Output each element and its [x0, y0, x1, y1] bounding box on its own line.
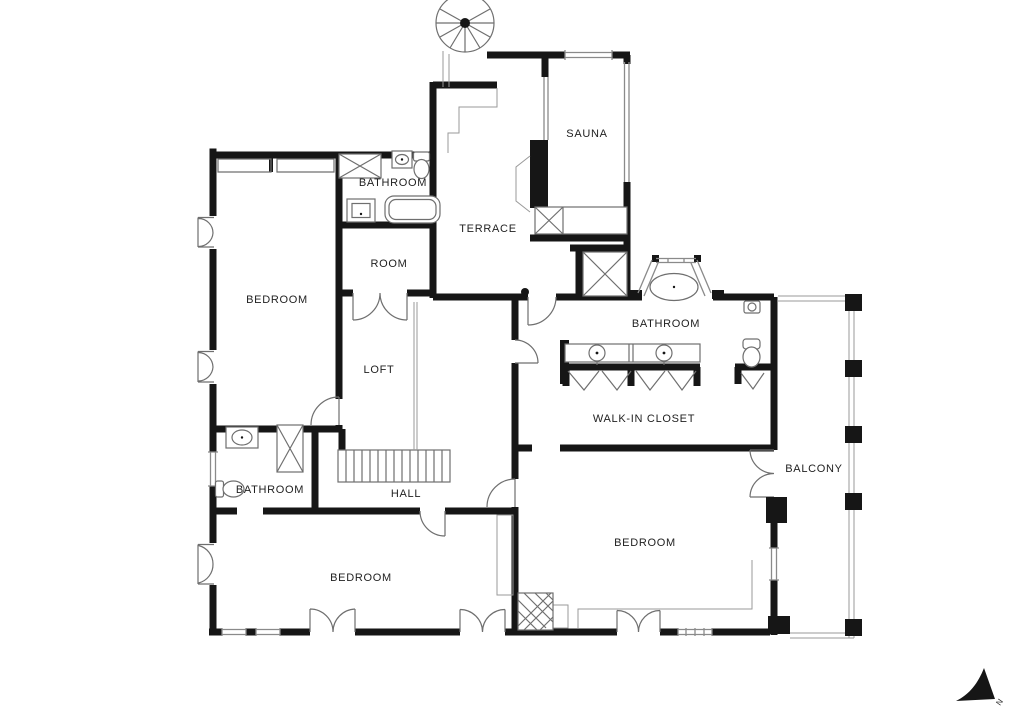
room-label-bedroom-right: BEDROOM	[614, 537, 676, 549]
terrace-features	[436, 0, 497, 153]
room-label-bathroom-top: BATHROOM	[359, 177, 427, 189]
window-icon	[678, 628, 712, 636]
shower-icon	[277, 425, 303, 472]
door-icon	[420, 511, 445, 536]
double-door-icon	[617, 611, 660, 633]
column-icon	[768, 616, 790, 634]
spiral-staircase-icon	[436, 0, 494, 87]
floor-plan-page: BEDROOM BATHROOM ROOM TERRACE SAUNA LOFT…	[0, 0, 1024, 711]
door-icon	[515, 340, 538, 363]
elevator-shaft-icon	[583, 252, 627, 296]
vanity-double-sink	[565, 344, 700, 365]
room-label-terrace: TERRACE	[459, 223, 516, 235]
oval-bathtub-icon	[650, 274, 698, 301]
double-door-icon	[310, 609, 355, 632]
bay-corner-right	[712, 290, 724, 299]
double-door-icon	[353, 293, 407, 320]
window-gap	[207, 350, 220, 384]
bathtub-icon	[385, 196, 440, 223]
window-icon	[769, 548, 779, 580]
sauna-wall-block	[530, 140, 548, 208]
window-icon	[256, 628, 280, 636]
north-label: N	[994, 697, 1005, 707]
room-label-room: ROOM	[370, 258, 407, 270]
window-icon	[544, 77, 548, 140]
terrace-step-outline	[448, 88, 497, 153]
sink-icon	[744, 301, 760, 313]
shower-icon	[339, 154, 381, 178]
door-icon	[311, 397, 339, 425]
staircase-icon	[338, 302, 450, 482]
sink-icon	[347, 199, 375, 222]
column-icon	[845, 426, 862, 443]
door-icon	[528, 297, 556, 325]
compass: N	[956, 668, 1005, 707]
column-icon	[845, 360, 862, 377]
sink-icon	[392, 151, 412, 168]
north-arrow-icon	[956, 668, 995, 701]
fireplace-icon	[518, 593, 553, 630]
floor-plan-canvas: BEDROOM BATHROOM ROOM TERRACE SAUNA LOFT…	[0, 0, 1024, 711]
closet-outline	[497, 515, 513, 595]
sauna-heater-outline	[516, 156, 530, 212]
window-icon	[565, 50, 612, 60]
window-icon	[625, 62, 630, 182]
room-label-bedroom-top-left: BEDROOM	[246, 294, 308, 306]
closet-shelf	[218, 159, 334, 172]
double-door-icon	[750, 450, 774, 497]
furniture-outline	[578, 560, 752, 628]
bedroom-extras	[497, 515, 752, 630]
toilet-icon	[414, 152, 430, 179]
room-label-bedroom-lower-left: BEDROOM	[330, 572, 392, 584]
door-pivot-dot	[521, 288, 529, 296]
room-label-loft: LOFT	[364, 364, 395, 376]
room-label-bathroom-master: BATHROOM	[632, 318, 700, 330]
sauna-bench	[535, 207, 627, 234]
room-label-walk-in-closet: WALK-IN CLOSET	[593, 413, 695, 425]
bay-corner-left	[630, 290, 642, 299]
stair-railing	[414, 302, 417, 450]
room-label-balcony: BALCONY	[785, 463, 842, 475]
column-icon	[766, 497, 787, 523]
windows	[198, 50, 779, 636]
sink-icon	[226, 427, 258, 448]
door-icon	[487, 479, 515, 507]
column-icon	[845, 294, 862, 311]
room-label-sauna: SAUNA	[566, 128, 607, 140]
column-icon	[845, 619, 862, 636]
window-icon	[222, 628, 246, 636]
double-door-icon	[460, 610, 505, 633]
column-icon	[845, 493, 862, 510]
room-label-hall: HALL	[391, 488, 421, 500]
toilet-icon	[743, 339, 760, 367]
room-label-bathroom-lower: BATHROOM	[236, 484, 304, 496]
